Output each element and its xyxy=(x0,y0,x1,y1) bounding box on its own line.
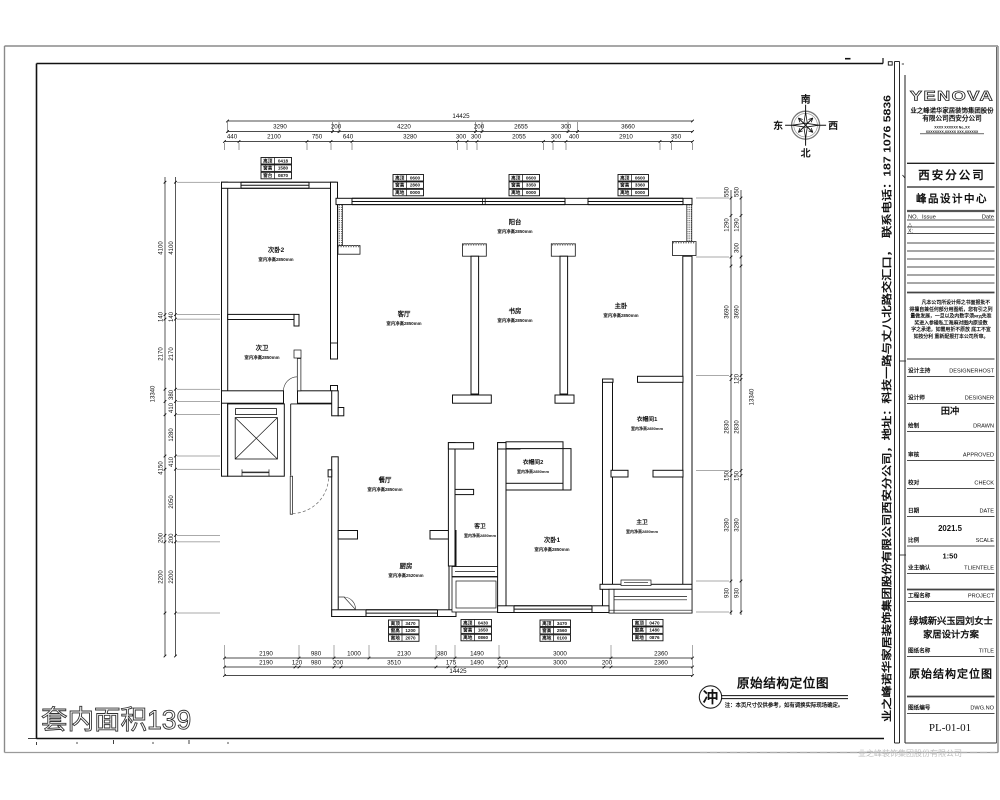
svg-text:DESIGNERHOST: DESIGNERHOST xyxy=(949,369,994,375)
svg-text:工程名称: 工程名称 xyxy=(908,592,931,600)
svg-text:410: 410 xyxy=(169,402,175,413)
svg-text:1280: 1280 xyxy=(169,428,175,442)
svg-text:室内净高2850mm: 室内净高2850mm xyxy=(517,468,549,474)
svg-text:厨房: 厨房 xyxy=(400,561,413,570)
svg-text:930: 930 xyxy=(735,587,741,598)
svg-text:3350: 3350 xyxy=(526,183,537,188)
svg-text:图纸编号: 图纸编号 xyxy=(908,704,931,712)
svg-text:2910: 2910 xyxy=(619,134,633,141)
svg-text:绘制: 绘制 xyxy=(908,422,920,430)
svg-text:设计师: 设计师 xyxy=(908,394,925,402)
svg-text:室内净高2850mm: 室内净高2850mm xyxy=(534,546,569,553)
svg-text:150: 150 xyxy=(725,470,731,481)
svg-text:2200: 2200 xyxy=(169,570,175,584)
svg-text:室内净高2850mm: 室内净高2850mm xyxy=(244,354,279,361)
svg-text:次卧2: 次卧2 xyxy=(268,245,285,254)
svg-text:离地: 离地 xyxy=(620,189,630,196)
svg-text:2055: 2055 xyxy=(512,134,526,141)
svg-text:TLIENTELE: TLIENTELE xyxy=(964,566,994,572)
svg-text:0418: 0418 xyxy=(278,158,289,163)
svg-text:1480: 1480 xyxy=(649,628,660,633)
svg-text:2021.5: 2021.5 xyxy=(938,524,963,533)
svg-text:DRAWN: DRAWN xyxy=(973,424,994,430)
svg-text:2190: 2190 xyxy=(259,650,273,657)
svg-text:SCALE: SCALE xyxy=(976,538,995,544)
svg-text:350: 350 xyxy=(671,134,682,141)
svg-text:离顶: 离顶 xyxy=(463,619,473,626)
svg-text:离地: 离地 xyxy=(463,634,473,641)
svg-text:字之承诺，如需用折不原放 底工不宣: 字之承诺，如需用折不原放 底工不宣 xyxy=(911,326,991,333)
svg-text:离顶: 离顶 xyxy=(391,620,401,627)
svg-text:1290: 1290 xyxy=(725,218,731,232)
svg-text:550: 550 xyxy=(735,186,741,197)
svg-text:北: 北 xyxy=(801,148,811,160)
svg-text:西安分公司: 西安分公司 xyxy=(918,168,986,182)
svg-text:3000: 3000 xyxy=(553,659,567,666)
svg-text:0100: 0100 xyxy=(557,636,568,641)
svg-text:CHECK: CHECK xyxy=(974,481,994,487)
svg-text:PROJECT: PROJECT xyxy=(968,594,995,600)
svg-text:室内净高2850mm: 室内净高2850mm xyxy=(497,228,532,235)
svg-text:380: 380 xyxy=(169,389,175,400)
svg-text:750: 750 xyxy=(312,134,323,141)
svg-text:300: 300 xyxy=(735,242,741,253)
svg-text:2170: 2170 xyxy=(159,347,165,361)
svg-text:2100: 2100 xyxy=(267,134,281,141)
svg-text:400: 400 xyxy=(569,134,580,141)
svg-text:3470: 3470 xyxy=(557,621,568,626)
svg-text:0876: 0876 xyxy=(649,635,660,640)
svg-text:200: 200 xyxy=(169,533,175,544)
svg-text:离地: 离地 xyxy=(511,189,521,196)
svg-text:1490: 1490 xyxy=(470,650,484,657)
svg-text:3510: 3510 xyxy=(387,659,401,666)
svg-text:设计主持: 设计主持 xyxy=(908,367,931,375)
svg-text:13340: 13340 xyxy=(151,385,157,402)
svg-text:2170: 2170 xyxy=(169,347,175,361)
svg-text:业之峰诺华家居装饰集团股份有限公司西安分公司，地址：科技一路: 业之峰诺华家居装饰集团股份有限公司西安分公司，地址：科技一路与丈八北路交汇口， … xyxy=(881,95,894,722)
svg-text:室内净高2850mm: 室内净高2850mm xyxy=(626,528,658,534)
svg-text:0860: 0860 xyxy=(478,635,489,640)
svg-text:田冲: 田冲 xyxy=(941,405,960,416)
svg-text:14425: 14425 xyxy=(452,113,470,120)
svg-text:200: 200 xyxy=(602,659,613,666)
svg-text:930: 930 xyxy=(725,587,731,598)
svg-text:300: 300 xyxy=(551,134,562,141)
svg-text:窗高: 窗高 xyxy=(463,627,473,634)
svg-text:窗台: 窗台 xyxy=(263,172,273,179)
svg-text:APPROVED: APPROVED xyxy=(963,453,994,459)
svg-text:2200: 2200 xyxy=(159,570,165,584)
svg-text:300: 300 xyxy=(456,134,467,141)
svg-text:离地: 离地 xyxy=(391,635,401,642)
svg-text:业之峰装饰集团股份有限公司: 业之峰装饰集团股份有限公司 xyxy=(858,748,962,758)
svg-text:640: 640 xyxy=(343,134,354,141)
svg-text:窗高: 窗高 xyxy=(620,182,630,189)
svg-text:离顶: 离顶 xyxy=(635,619,645,626)
svg-text:南: 南 xyxy=(801,93,811,106)
svg-text:3470: 3470 xyxy=(405,621,416,626)
svg-text:书房: 书房 xyxy=(509,306,522,315)
svg-text:离地: 离地 xyxy=(395,189,405,196)
svg-text:2560: 2560 xyxy=(557,628,568,633)
svg-text:410: 410 xyxy=(169,456,175,467)
svg-text:室内净高2850mm: 室内净高2850mm xyxy=(258,256,293,263)
svg-text:审核: 审核 xyxy=(908,451,920,459)
svg-text:次卧1: 次卧1 xyxy=(544,535,561,544)
svg-text:3690: 3690 xyxy=(725,305,731,319)
svg-text:2130: 2130 xyxy=(397,650,411,657)
svg-text:家居设计方案: 家居设计方案 xyxy=(923,629,979,640)
svg-text:1290: 1290 xyxy=(735,218,741,232)
svg-text:2070: 2070 xyxy=(405,636,416,641)
svg-text:峰品设计中心: 峰品设计中心 xyxy=(916,192,988,205)
svg-text:冲: 冲 xyxy=(703,688,719,707)
svg-text:2360: 2360 xyxy=(654,659,668,666)
svg-text:3360: 3360 xyxy=(635,183,646,188)
svg-text:窗高: 窗高 xyxy=(542,627,552,634)
svg-text:550: 550 xyxy=(725,186,731,197)
svg-text:▴: ▴ xyxy=(152,741,154,745)
svg-text:1580: 1580 xyxy=(278,166,289,171)
svg-text:比例: 比例 xyxy=(908,536,920,544)
svg-text:室内净高2850mm: 室内净高2850mm xyxy=(386,320,421,327)
svg-text:绿城新兴玉园刘女士: 绿城新兴玉园刘女士 xyxy=(909,615,993,626)
svg-text:客卫: 客卫 xyxy=(473,522,486,530)
svg-text:得擅自兼任何部分用图纸，您有引之列: 得擅自兼任何部分用图纸，您有引之列 xyxy=(908,306,992,313)
svg-text:有限公司西安分公司: 有限公司西安分公司 xyxy=(922,114,981,123)
svg-text:▴: ▴ xyxy=(76,741,78,745)
svg-text:2830: 2830 xyxy=(735,420,741,434)
svg-text:1650: 1650 xyxy=(478,628,489,633)
svg-text:0000: 0000 xyxy=(526,190,537,195)
svg-text:衣帽间1: 衣帽间1 xyxy=(637,415,658,423)
svg-text:300: 300 xyxy=(471,134,482,141)
svg-text:140: 140 xyxy=(169,311,175,322)
svg-text:2360: 2360 xyxy=(654,650,668,657)
svg-text:4150: 4150 xyxy=(159,461,165,475)
svg-text:窗高: 窗高 xyxy=(391,627,401,634)
svg-text:校对: 校对 xyxy=(908,479,920,487)
svg-text:图纸名称: 图纸名称 xyxy=(908,647,931,655)
svg-text:4100: 4100 xyxy=(159,241,165,255)
svg-text:日期: 日期 xyxy=(908,507,920,515)
svg-text:0000: 0000 xyxy=(635,190,646,195)
svg-text:380: 380 xyxy=(437,650,448,657)
svg-text:200: 200 xyxy=(498,659,509,666)
svg-text:1:50: 1:50 xyxy=(942,552,957,561)
svg-text:TITLE: TITLE xyxy=(979,649,994,655)
svg-text:如按分利 重新配报打本公司所审。: 如按分利 重新配报打本公司所审。 xyxy=(914,333,989,340)
svg-text:餐厅: 餐厅 xyxy=(379,475,392,484)
svg-text:▴: ▴ xyxy=(227,741,229,745)
svg-text:业主确认: 业主确认 xyxy=(908,564,931,572)
svg-text:离顶: 离顶 xyxy=(542,620,552,627)
svg-text:凡本公司所设计师之书面报批不: 凡本公司所设计师之书面报批不 xyxy=(912,299,990,306)
svg-text:300: 300 xyxy=(561,124,572,131)
svg-text:14425: 14425 xyxy=(449,668,467,675)
svg-text:XXXXXXXX,XXXXX XXX,XXXXXX: XXXXXXXX,XXXXX XXX,XXXXXX xyxy=(926,130,979,134)
svg-text:175: 175 xyxy=(446,659,457,666)
svg-text:4220: 4220 xyxy=(397,124,411,131)
svg-text:衣帽间2: 衣帽间2 xyxy=(523,458,544,466)
svg-text:YENOVA: YENOVA xyxy=(910,88,994,104)
svg-text:2190: 2190 xyxy=(259,659,273,666)
svg-text:室内净高2850mm: 室内净高2850mm xyxy=(631,425,663,431)
svg-text:室内净高2850mm: 室内净高2850mm xyxy=(464,532,496,538)
svg-text:主卫: 主卫 xyxy=(636,518,648,526)
svg-text:离地: 离地 xyxy=(542,635,552,642)
svg-text:0000: 0000 xyxy=(410,190,421,195)
svg-text:业之峰诺华家居装饰集团股份: 业之峰诺华家居装饰集团股份 xyxy=(910,106,994,115)
svg-text:窗高: 窗高 xyxy=(395,182,405,189)
svg-text:2655: 2655 xyxy=(514,124,528,131)
svg-text:2050: 2050 xyxy=(169,495,175,509)
svg-text:原始结构定位图: 原始结构定位图 xyxy=(909,667,993,681)
svg-text:0430: 0430 xyxy=(478,620,489,625)
svg-text:200: 200 xyxy=(159,532,165,543)
svg-text:阳台: 阳台 xyxy=(509,217,522,226)
svg-text:0600: 0600 xyxy=(410,175,421,180)
svg-text:1200: 1200 xyxy=(405,628,416,633)
svg-text:1000: 1000 xyxy=(347,650,361,657)
svg-text:2860: 2860 xyxy=(410,183,421,188)
svg-text:4100: 4100 xyxy=(169,241,175,255)
svg-text:NO.: NO. xyxy=(908,215,919,221)
svg-text:3280: 3280 xyxy=(725,518,731,532)
svg-text:室内净高2520mm: 室内净高2520mm xyxy=(388,572,423,579)
svg-text:离顶: 离顶 xyxy=(395,174,405,181)
svg-text:注：本页尺寸仅供参考，如有调换实际现场确定。: 注：本页尺寸仅供参考，如有调换实际现场确定。 xyxy=(725,701,844,709)
svg-text:140: 140 xyxy=(159,311,165,322)
svg-text:奖进入参碰私工海麻对图内原设数: 奖进入参碰私工海麻对图内原设数 xyxy=(914,319,987,326)
svg-text:离地: 离地 xyxy=(635,634,645,641)
svg-text:量做发展，一旦以及内数字须ягд先准: 量做发展，一旦以及内数字须ягд先准 xyxy=(910,313,991,320)
svg-text:13340: 13340 xyxy=(750,388,756,405)
svg-text:室内净高2850mm: 室内净高2850mm xyxy=(497,317,532,324)
svg-text:200: 200 xyxy=(333,659,344,666)
svg-text:Issue: Issue xyxy=(922,215,936,221)
svg-text:DATE: DATE xyxy=(979,509,994,515)
svg-text:150: 150 xyxy=(735,470,741,481)
svg-text:离顶: 离顶 xyxy=(511,174,521,181)
svg-text:120: 120 xyxy=(735,373,741,384)
svg-text:0470: 0470 xyxy=(649,620,660,625)
svg-text:PL-01-01: PL-01-01 xyxy=(929,722,971,734)
svg-text:3000: 3000 xyxy=(553,650,567,657)
svg-text:离顶: 离顶 xyxy=(620,174,630,181)
svg-text:客厅: 客厅 xyxy=(397,309,411,318)
svg-text:东: 东 xyxy=(773,119,783,132)
svg-text:套内面积139: 套内面积139 xyxy=(41,705,191,735)
svg-text:次卫: 次卫 xyxy=(256,343,269,352)
svg-text:主卧: 主卧 xyxy=(615,301,628,310)
svg-text:DESIGNER: DESIGNER xyxy=(965,396,994,402)
svg-text:980: 980 xyxy=(311,650,322,657)
svg-text:窗高: 窗高 xyxy=(511,182,521,189)
svg-text:西: 西 xyxy=(828,120,838,132)
svg-text:3290: 3290 xyxy=(273,124,287,131)
svg-text:室内净高2850mm: 室内净高2850mm xyxy=(603,312,638,319)
svg-text:0600: 0600 xyxy=(526,175,537,180)
svg-text:0870: 0870 xyxy=(278,173,289,178)
svg-text:440: 440 xyxy=(227,134,238,141)
svg-text:DWG.NO: DWG.NO xyxy=(970,706,994,712)
svg-text:3690: 3690 xyxy=(735,305,741,319)
svg-text:离顶: 离顶 xyxy=(263,157,273,164)
svg-text:3660: 3660 xyxy=(621,124,635,131)
svg-text:原始结构定位图: 原始结构定位图 xyxy=(737,676,829,691)
svg-text:2830: 2830 xyxy=(725,420,731,434)
svg-text:Date: Date xyxy=(982,215,994,221)
svg-text:室内净高2850mm: 室内净高2850mm xyxy=(367,486,402,493)
svg-text:0600: 0600 xyxy=(635,175,646,180)
svg-text:3280: 3280 xyxy=(403,134,417,141)
svg-text:3280: 3280 xyxy=(735,518,741,532)
svg-text:窗高: 窗高 xyxy=(263,165,273,172)
svg-text:120: 120 xyxy=(292,659,303,666)
svg-text:窗高: 窗高 xyxy=(635,627,645,634)
svg-text:1490: 1490 xyxy=(470,659,484,666)
svg-text:980: 980 xyxy=(311,659,322,666)
